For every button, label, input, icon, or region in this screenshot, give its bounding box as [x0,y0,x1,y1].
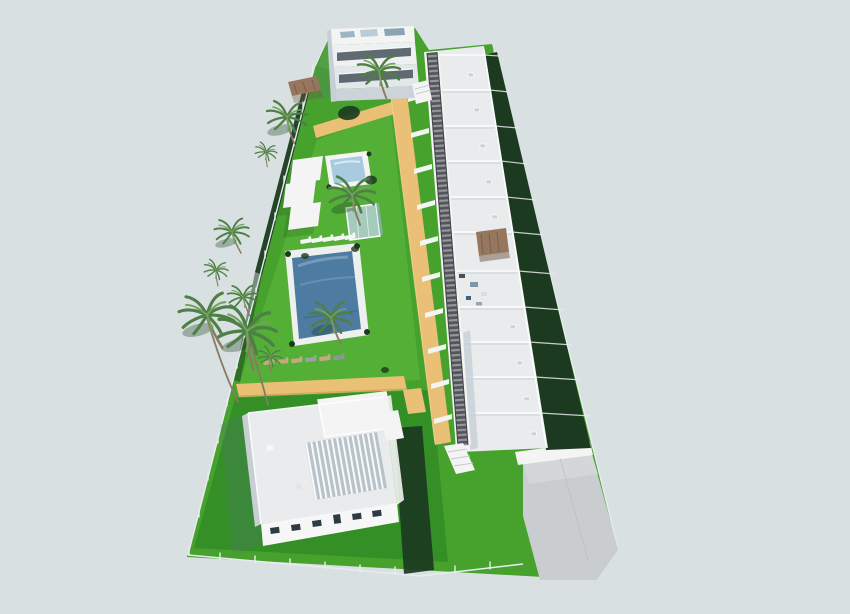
roof-terrace-pergola [476,228,510,262]
render-canvas: Aerial 3D rendering of a new-build resid… [0,0,850,614]
shade-sail [290,156,323,184]
architectural-render: Aerial 3D rendering of a new-build resid… [0,0,850,614]
kids-pool [325,151,372,190]
shade-sail [288,202,321,230]
villa-roof-pergola-slats [305,432,387,500]
